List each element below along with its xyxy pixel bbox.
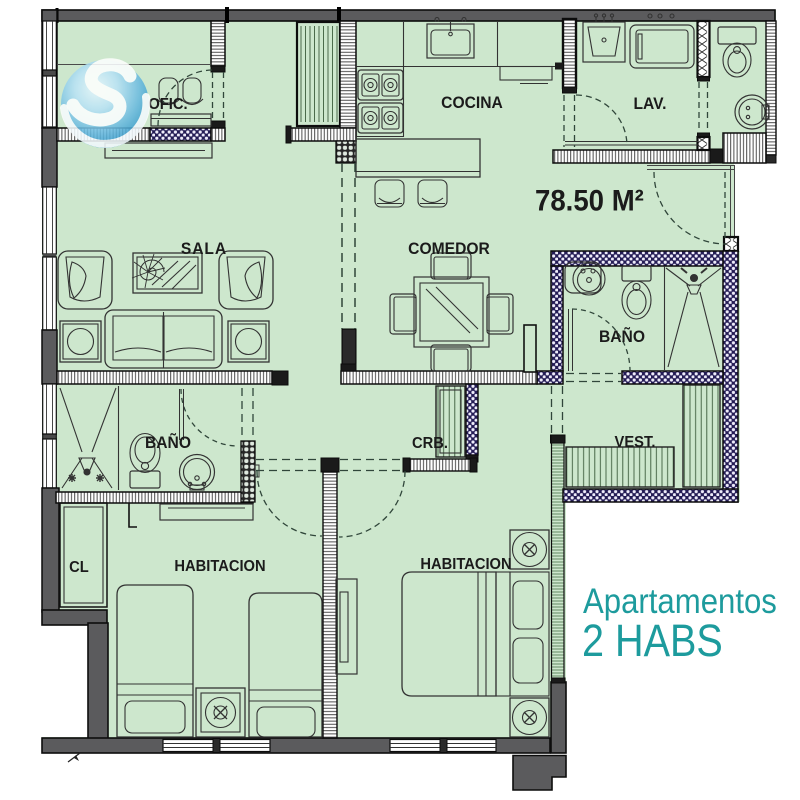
svg-text:LAV.: LAV. — [633, 94, 666, 113]
svg-text:SALA: SALA — [181, 239, 227, 258]
svg-text:COCINA: COCINA — [441, 93, 503, 112]
svg-text:BAÑO: BAÑO — [145, 431, 191, 452]
svg-text:HABITACION: HABITACION — [420, 555, 511, 573]
svg-text:2 HABS: 2 HABS — [582, 616, 723, 666]
svg-text:CL: CL — [69, 558, 89, 576]
svg-text:VEST.: VEST. — [615, 433, 656, 451]
svg-text:78.50 M²: 78.50 M² — [535, 184, 644, 217]
svg-text:BAÑO: BAÑO — [599, 325, 645, 346]
svg-text:COMEDOR: COMEDOR — [408, 239, 490, 258]
svg-text:HABITACION: HABITACION — [174, 557, 265, 575]
svg-text:OFIC.: OFIC. — [148, 95, 187, 113]
svg-text:CRB.: CRB. — [412, 434, 448, 452]
